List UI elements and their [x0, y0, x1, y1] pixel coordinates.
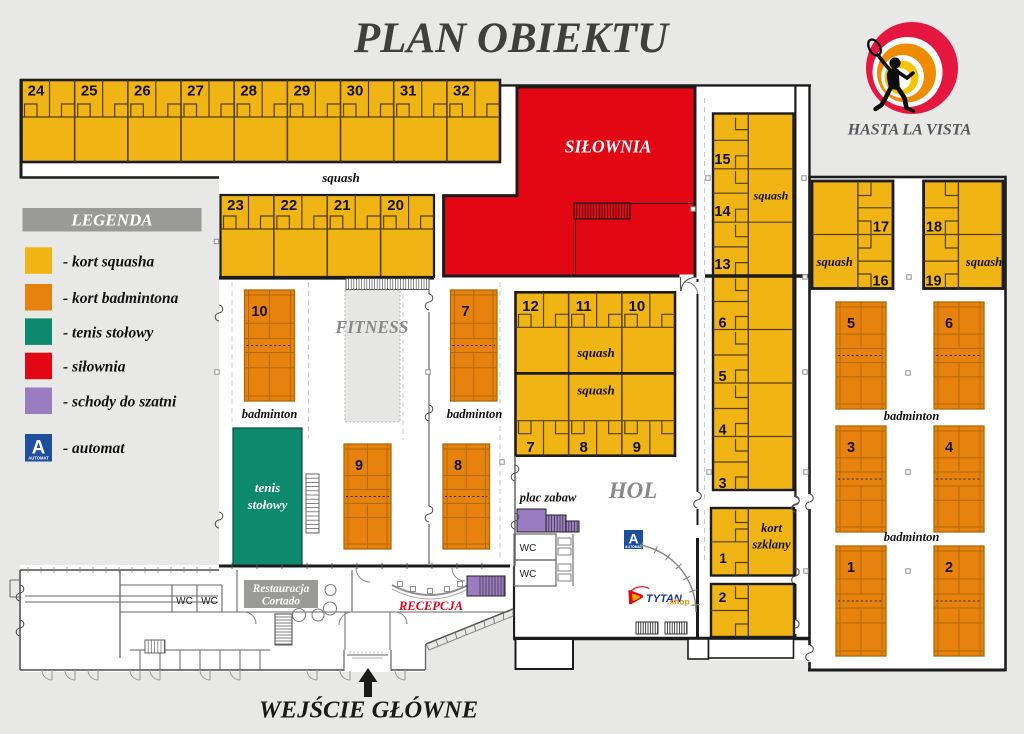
svg-text:4: 4: [718, 423, 726, 439]
svg-text:squash: squash: [816, 255, 853, 269]
svg-text:AUTOMAT: AUTOMAT: [28, 456, 49, 461]
svg-text:squash: squash: [576, 383, 615, 398]
svg-text:8: 8: [454, 458, 462, 474]
svg-text:25: 25: [81, 83, 98, 100]
svg-text:3: 3: [718, 476, 726, 492]
svg-text:2: 2: [719, 589, 727, 605]
svg-text:badminton: badminton: [884, 409, 940, 423]
svg-text:20: 20: [387, 197, 404, 214]
svg-text:14: 14: [714, 204, 730, 220]
svg-text:5: 5: [847, 316, 855, 332]
svg-text:21: 21: [334, 197, 351, 214]
svg-text:24: 24: [28, 83, 45, 100]
svg-text:PLAN OBIEKTU: PLAN OBIEKTU: [353, 15, 670, 62]
svg-text:12: 12: [522, 298, 539, 315]
svg-text:WC: WC: [520, 569, 537, 580]
svg-text:HASTA LA VISTA: HASTA LA VISTA: [847, 122, 972, 139]
svg-text:WC: WC: [176, 596, 193, 607]
svg-text:1: 1: [847, 560, 855, 576]
svg-text:27: 27: [187, 83, 204, 100]
svg-text:WEJŚCIE GŁÓWNE: WEJŚCIE GŁÓWNE: [259, 696, 478, 724]
svg-text:5: 5: [718, 369, 726, 385]
svg-text:2: 2: [945, 560, 953, 576]
svg-text:22: 22: [281, 197, 298, 214]
svg-text:szklany: szklany: [751, 538, 791, 552]
svg-text:29: 29: [294, 83, 311, 100]
svg-text:LEGENDA: LEGENDA: [70, 211, 152, 230]
svg-text:15: 15: [714, 152, 730, 168]
svg-text:6: 6: [945, 316, 953, 332]
svg-text:WC: WC: [201, 596, 218, 607]
svg-text:30: 30: [347, 83, 364, 100]
svg-text:23: 23: [227, 197, 244, 214]
svg-text:10: 10: [628, 298, 645, 315]
svg-text:8: 8: [579, 439, 587, 456]
svg-text:16: 16: [872, 274, 888, 290]
svg-text:32: 32: [453, 83, 470, 100]
svg-text:9: 9: [355, 458, 363, 474]
svg-text:Restauracja: Restauracja: [252, 583, 310, 595]
svg-text:7: 7: [526, 439, 534, 456]
svg-text:- kort badmintona: - kort badmintona: [63, 290, 179, 307]
svg-text:31: 31: [400, 83, 417, 100]
svg-text:7: 7: [461, 304, 469, 320]
svg-text:9: 9: [633, 439, 641, 456]
svg-text:- schody do szatni: - schody do szatni: [63, 394, 177, 411]
svg-text:28: 28: [240, 83, 257, 100]
svg-text:squash: squash: [321, 170, 360, 185]
svg-text:4: 4: [945, 440, 953, 456]
svg-text:10: 10: [251, 304, 267, 320]
svg-text:stołowy: stołowy: [247, 497, 288, 512]
svg-text:FITNESS: FITNESS: [335, 317, 409, 337]
svg-text:squash: squash: [965, 255, 1002, 269]
svg-text:Cortado: Cortado: [262, 596, 301, 608]
svg-text:19: 19: [925, 274, 941, 290]
svg-text:13: 13: [714, 257, 730, 273]
svg-text:- kort squasha: - kort squasha: [63, 253, 155, 270]
svg-text:18: 18: [926, 220, 942, 236]
svg-text:11: 11: [576, 298, 592, 315]
svg-text:6: 6: [718, 316, 726, 332]
svg-text:26: 26: [134, 83, 151, 100]
svg-text:RECEPCJA: RECEPCJA: [398, 599, 463, 613]
svg-text:squash: squash: [576, 345, 615, 360]
svg-text:1: 1: [719, 550, 727, 566]
svg-text:squash: squash: [753, 189, 789, 203]
svg-text:badminton: badminton: [884, 530, 940, 544]
svg-text:kort: kort: [761, 521, 782, 535]
svg-text:.shop: .shop: [667, 597, 690, 607]
svg-text:- tenis stołowy: - tenis stołowy: [63, 324, 154, 341]
svg-text:- automat: - automat: [63, 440, 125, 457]
svg-text:plac zabaw: plac zabaw: [519, 491, 577, 505]
svg-text:tenis: tenis: [255, 480, 280, 495]
svg-text:badminton: badminton: [242, 407, 298, 421]
svg-text:HOL: HOL: [608, 478, 658, 503]
svg-text:badminton: badminton: [447, 407, 503, 421]
svg-text:WC: WC: [520, 543, 537, 554]
svg-text:- siłownia: - siłownia: [63, 359, 126, 376]
svg-text:17: 17: [873, 220, 889, 236]
svg-text:SIŁOWNIA: SIŁOWNIA: [565, 137, 652, 157]
svg-text:3: 3: [847, 440, 855, 456]
